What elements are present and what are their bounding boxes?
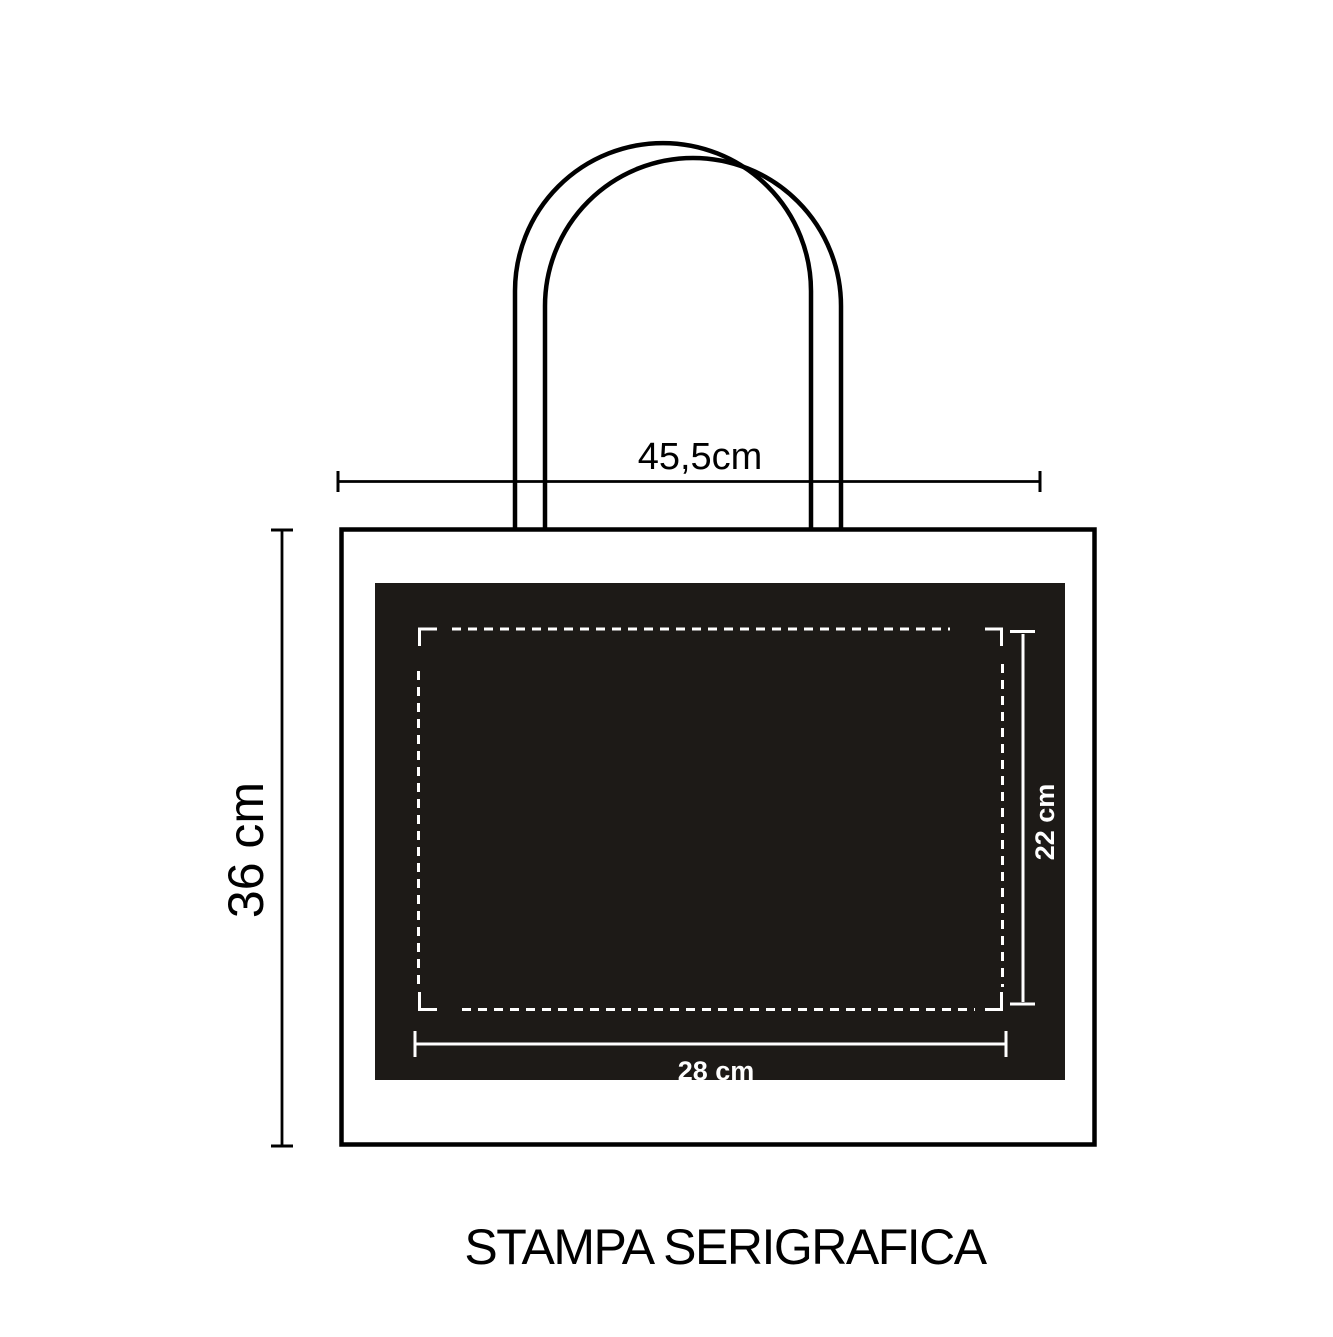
diagram-drawing <box>0 0 1333 1337</box>
bag-width-dimension-label: 45,5cm <box>540 437 860 477</box>
bag-height-dimension-label: 36 cm <box>221 700 271 1000</box>
print-width-dimension-label: 28 cm <box>616 1056 816 1086</box>
print-area-panel <box>375 583 1065 1080</box>
tote-bag-print-spec-diagram: 45,5cm 36 cm 22 cm 28 cm STAMPA SERIGRAF… <box>0 0 1333 1337</box>
print-height-dimension-label: 22 cm <box>1029 722 1061 922</box>
diagram-title: STAMPA SERIGRAFICA <box>375 1218 1075 1276</box>
